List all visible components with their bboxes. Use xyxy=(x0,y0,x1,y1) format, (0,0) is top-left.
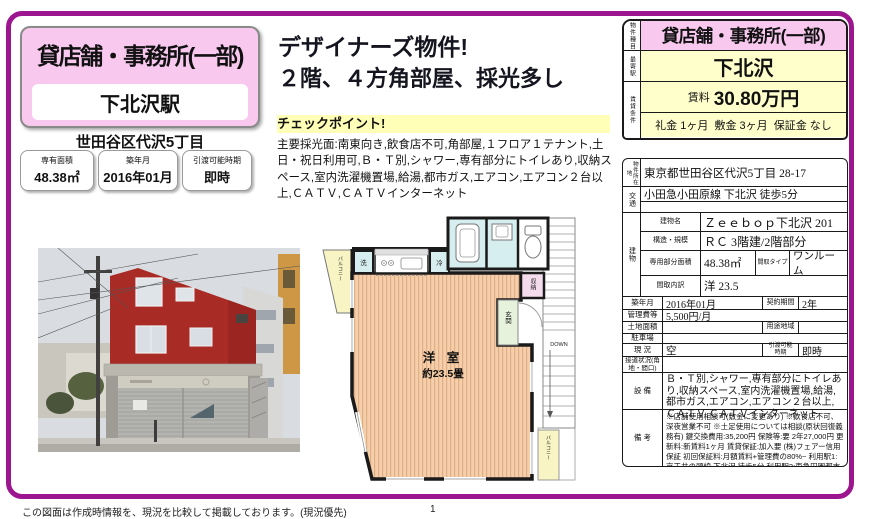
info-box-label: 専有面積 xyxy=(41,155,73,166)
fridge-label: 冷 xyxy=(436,258,443,267)
label-status: 現 況 xyxy=(623,344,663,356)
down-label: DOWN xyxy=(550,342,567,348)
label-parking: 駐車場 xyxy=(623,334,663,343)
summary-value-type: 貸店舗・事務所(一部) xyxy=(641,21,846,50)
summary-table: 物件種目 貸店舗・事務所(一部) 最寄駅 下北沢 賃貸条件 賃料 30.80万円… xyxy=(622,19,848,140)
address-short: 世田谷区代沢5丁目 xyxy=(20,131,260,152)
value-equipment: Ｂ・Ｔ別,シャワー,専有部分にトイレあり,収納スペース,室内洗濯機置場,給湯,都… xyxy=(663,373,847,409)
summary-label-terms: 賃貸条件 xyxy=(624,82,641,138)
info-box-handover: 引渡可能時期 即時 xyxy=(182,150,252,191)
property-type-box: 貸店舗・事務所(一部) 下北沢駅 xyxy=(20,26,260,128)
washer-label: 洗 xyxy=(360,258,367,267)
sidewalk xyxy=(38,438,300,444)
floor-plan: DOWN バルコニー バルコニー 洗 冷 xyxy=(310,216,610,493)
room-label: 洋 室 xyxy=(423,350,463,365)
bollard xyxy=(154,420,157,442)
rent-value: 30.80万円 xyxy=(714,84,800,111)
row-land: 土地面積 用途地域 xyxy=(623,322,847,334)
value-access-blank xyxy=(641,202,847,212)
label-building-name: 建物名 xyxy=(641,213,701,231)
room-size-label: 約23.5畳 xyxy=(422,367,464,380)
summary-row-type: 物件種目 貸店舗・事務所(一部) xyxy=(624,21,846,51)
label-location: 物件所在地 xyxy=(623,159,641,186)
label-built: 築年月 xyxy=(623,297,663,309)
value-road xyxy=(663,357,847,372)
label-layout-type: 間取タイプ xyxy=(756,251,790,275)
row-access: 交通 小田急小田原線 下北沢 徒歩5分 xyxy=(623,187,847,213)
row-mgmt: 管理費等 5,500円/月 xyxy=(623,310,847,322)
label-zoning: 用途地域 xyxy=(763,322,799,333)
value-layout-detail: 洋 23.5 xyxy=(701,276,847,296)
info-box-label: 引渡可能時期 xyxy=(193,155,241,166)
property-photo xyxy=(38,248,300,452)
label-land: 土地面積 xyxy=(623,322,663,333)
summary-value-station: 下北沢 xyxy=(641,51,846,81)
catch-copy-line2: ２階、４方角部屋、採光多し xyxy=(278,61,564,93)
sanitary-block xyxy=(448,218,548,269)
kitchen xyxy=(375,249,428,276)
value-building-name: Ｚｅｅｂｏｐ下北沢 201 xyxy=(701,213,847,231)
summary-row-terms: 賃貸条件 賃料 30.80万円 礼金 1ヶ月 敷金 3ヶ月 保証金 なし xyxy=(624,82,846,138)
toilet-icon xyxy=(525,226,541,235)
value-handover: 即時 xyxy=(799,344,847,356)
row-status: 現 況 空 引渡可能時期 即時 xyxy=(623,344,847,357)
label-contract: 契約期間 xyxy=(763,297,799,309)
value-contract: 2年 xyxy=(799,297,847,309)
row-building: 建物 建物名 Ｚｅｅｂｏｐ下北沢 201 構造・規模 ＲＣ 3階建/2階部分 専… xyxy=(623,213,847,297)
value-land xyxy=(663,322,763,333)
value-access: 小田急小田原線 下北沢 徒歩5分 xyxy=(641,187,847,202)
footer-disclaimer: この図面は作成時情報を、現況を比較して掲載しております。(現況優先) xyxy=(22,504,347,519)
value-parking xyxy=(663,334,847,343)
row-location: 物件所在地 東京都世田谷区代沢5丁目 28-17 xyxy=(623,159,847,187)
value-area: 48.38㎡ xyxy=(701,251,756,275)
info-box-value: 48.38㎡ xyxy=(34,167,80,186)
property-type-title: 貸店舗・事務所(一部) xyxy=(22,37,258,71)
balcony-top-label: バルコニー xyxy=(337,256,343,281)
label-handover: 引渡可能時期 xyxy=(763,344,799,356)
building-band xyxy=(104,364,262,376)
row-parking: 駐車場 xyxy=(623,334,847,344)
detail-table: 物件所在地 東京都世田谷区代沢5丁目 28-17 交通 小田急小田原線 下北沢 … xyxy=(622,158,848,467)
info-box-value: 2016年01月 xyxy=(103,167,172,186)
page-number: 1 xyxy=(430,504,436,515)
value-mgmt: 5,500円/月 xyxy=(663,310,847,321)
info-box-built: 築年月 2016年01月 xyxy=(98,150,178,191)
row-road: 接道状況(角地・間口) xyxy=(623,357,847,373)
value-zoning xyxy=(799,322,847,333)
value-layout-type: ワンルーム xyxy=(790,251,847,275)
label-mgmt: 管理費等 xyxy=(623,310,663,321)
checkpoint-heading: チェックポイント! xyxy=(277,115,610,133)
summary-row-station: 最寄駅 下北沢 xyxy=(624,51,846,82)
shutter xyxy=(118,388,248,444)
info-box-area: 専有面積 48.38㎡ xyxy=(20,150,94,191)
label-layout-detail: 間取内訳 xyxy=(641,276,701,296)
value-remarks: ※店舗使用相談可(敷金に変更あり) ※飲食店不可、深夜営業不可 ※土足使用につい… xyxy=(663,410,847,466)
row-remarks: 備 考 ※店舗使用相談可(敷金に変更あり) ※飲食店不可、深夜営業不可 ※土足使… xyxy=(623,410,847,466)
info-box-label: 築年月 xyxy=(126,155,150,166)
storage-label: 収納 xyxy=(529,278,536,291)
value-built: 2016年01月 xyxy=(663,297,763,309)
street xyxy=(38,444,300,452)
summary-label-type: 物件種目 xyxy=(624,21,641,50)
label-area: 専用部分面積 xyxy=(641,251,701,275)
row-built: 築年月 2016年01月 契約期間 2年 xyxy=(623,297,847,310)
value-status: 空 xyxy=(663,344,763,356)
label-remarks: 備 考 xyxy=(623,410,663,466)
balcony-bottom-label: バルコニー xyxy=(545,435,551,460)
summary-label-station: 最寄駅 xyxy=(624,51,641,81)
label-equipment: 設 備 xyxy=(623,373,663,409)
rent-row: 賃料 30.80万円 xyxy=(641,82,846,113)
value-location: 東京都世田谷区代沢5丁目 28-17 xyxy=(641,159,847,186)
bathtub-icon xyxy=(456,224,479,262)
row-equipment: 設 備 Ｂ・Ｔ別,シャワー,専有部分にトイレあり,収納スペース,室内洗濯機置場,… xyxy=(623,373,847,410)
rent-label: 賃料 xyxy=(688,89,710,105)
label-structure: 構造・規模 xyxy=(641,232,701,250)
label-access: 交通 xyxy=(623,187,641,212)
label-road: 接道状況(角地・間口) xyxy=(623,357,663,372)
info-box-value: 即時 xyxy=(204,167,230,186)
value-structure: ＲＣ 3階建/2階部分 xyxy=(701,232,847,250)
label-building: 建物 xyxy=(623,213,641,296)
station-name: 下北沢駅 xyxy=(32,84,248,120)
info-box-row: 専有面積 48.38㎡ 築年月 2016年01月 引渡可能時期 即時 xyxy=(20,150,252,191)
deposit-terms: 礼金 1ヶ月 敷金 3ヶ月 保証金 なし xyxy=(641,113,846,137)
catch-copy-line1: デザイナーズ物件! xyxy=(278,28,468,62)
checkpoint-text: 主要採光面:南東向き,飲食店不可,角部屋,１フロア１テナント,土日・祝日利用可,… xyxy=(277,137,615,202)
